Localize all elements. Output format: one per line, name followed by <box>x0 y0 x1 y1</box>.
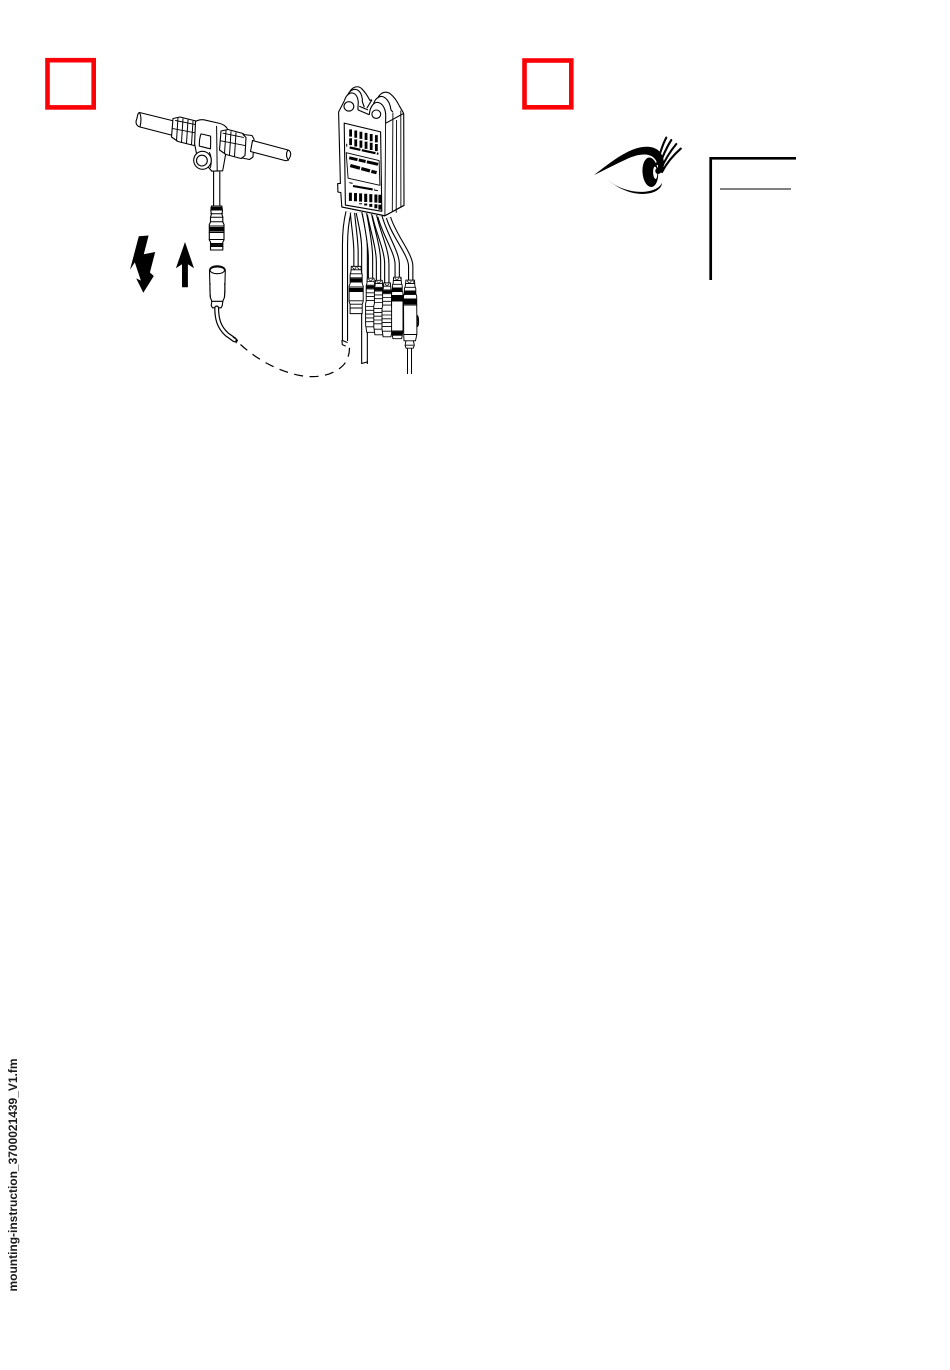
svg-text:mounting-instruction_370002143: mounting-instruction_3700021439_V1.fm <box>6 1059 20 1292</box>
